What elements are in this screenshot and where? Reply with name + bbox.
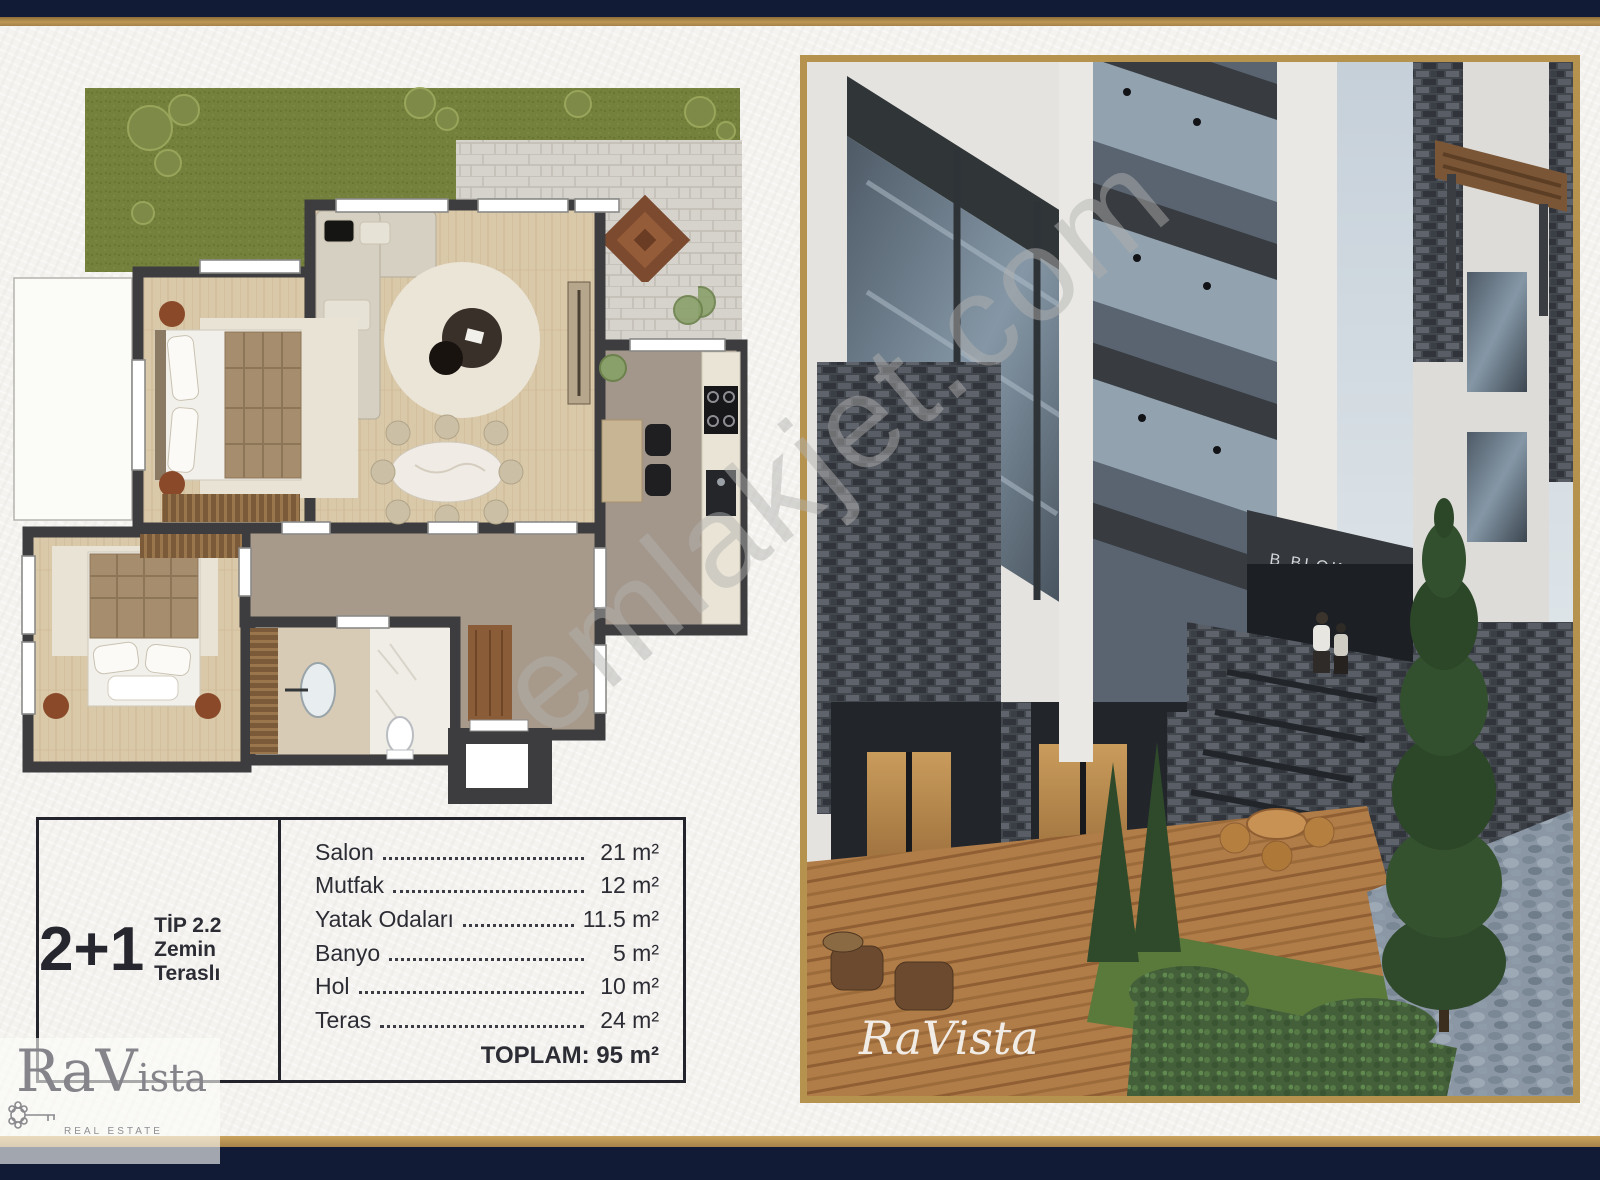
building-photo: B BLOK [800, 55, 1580, 1103]
spec-row: Salon21 m² [315, 832, 659, 866]
top-navy-bar [0, 0, 1600, 17]
spec-row: Banyo5 m² [315, 933, 659, 967]
top-gold-line [0, 17, 1600, 26]
room-label: Yatak Odaları [315, 906, 454, 933]
key-icon [8, 1100, 60, 1130]
side-table [159, 471, 185, 497]
room-list: Salon21 m² Mutfak12 m² Yatak Odaları11.5… [281, 820, 683, 1080]
side-table [159, 301, 185, 327]
room-label: Hol [315, 973, 350, 1000]
brand-name-ra: Ra [16, 1037, 96, 1105]
room-area: 12 m² [593, 872, 659, 899]
room-area: 11.5 m² [583, 906, 659, 933]
type-label: TİP 2.2 [154, 914, 278, 938]
room-label: Salon [315, 839, 374, 866]
wardrobe [162, 494, 300, 522]
dotted-leader [383, 857, 584, 860]
unit-type: 2+1 [39, 919, 144, 981]
flyer-page: B BLOK [0, 0, 1600, 1180]
brand-tagline: REAL ESTATE [64, 1126, 163, 1137]
plant-icon [600, 355, 626, 381]
dotted-leader [463, 924, 574, 927]
dotted-leader [359, 991, 584, 994]
bottom-navy-bar [0, 1147, 1600, 1180]
brand-name: RaVista [16, 1042, 207, 1100]
kitchen-table [602, 420, 642, 502]
room-label: Teras [315, 1007, 371, 1034]
dotted-leader [389, 958, 584, 961]
kitchen-sink [706, 470, 736, 516]
toilet-icon [387, 717, 413, 753]
entrance [448, 720, 552, 804]
room-label: Banyo [315, 940, 380, 967]
bathroom-closet [250, 628, 278, 754]
total-area: TOPLAM: 95 m² [315, 1042, 659, 1070]
side-table [195, 693, 221, 719]
spec-row: Teras24 m² [315, 1000, 659, 1034]
kitchen-chair [645, 424, 671, 456]
room-area: 5 m² [593, 940, 659, 967]
dining-table [391, 442, 503, 502]
photo-script-watermark: RaVista [858, 1011, 1039, 1065]
kitchen-chair [645, 464, 671, 496]
type-sublabel: Zemin Teraslı [154, 938, 278, 986]
dotted-leader [393, 890, 584, 893]
spec-row: Yatak Odaları11.5 m² [315, 899, 659, 933]
entry-door [470, 720, 528, 731]
bottom-gold-line [0, 1136, 1600, 1147]
room-area: 10 m² [593, 973, 659, 1000]
room-area: 21 m² [593, 839, 659, 866]
room-area: 24 m² [593, 1007, 659, 1034]
wardrobe [140, 534, 242, 558]
spec-row: Mutfak12 m² [315, 866, 659, 900]
spec-row: Hol10 m² [315, 967, 659, 1001]
side-table [43, 693, 69, 719]
side-patio [14, 278, 132, 520]
room-label: Mutfak [315, 872, 384, 899]
brand-name-vista: Vista [96, 1056, 207, 1100]
brand-logo: RaVista REAL ESTATE [0, 1038, 220, 1164]
dotted-leader [380, 1025, 584, 1028]
